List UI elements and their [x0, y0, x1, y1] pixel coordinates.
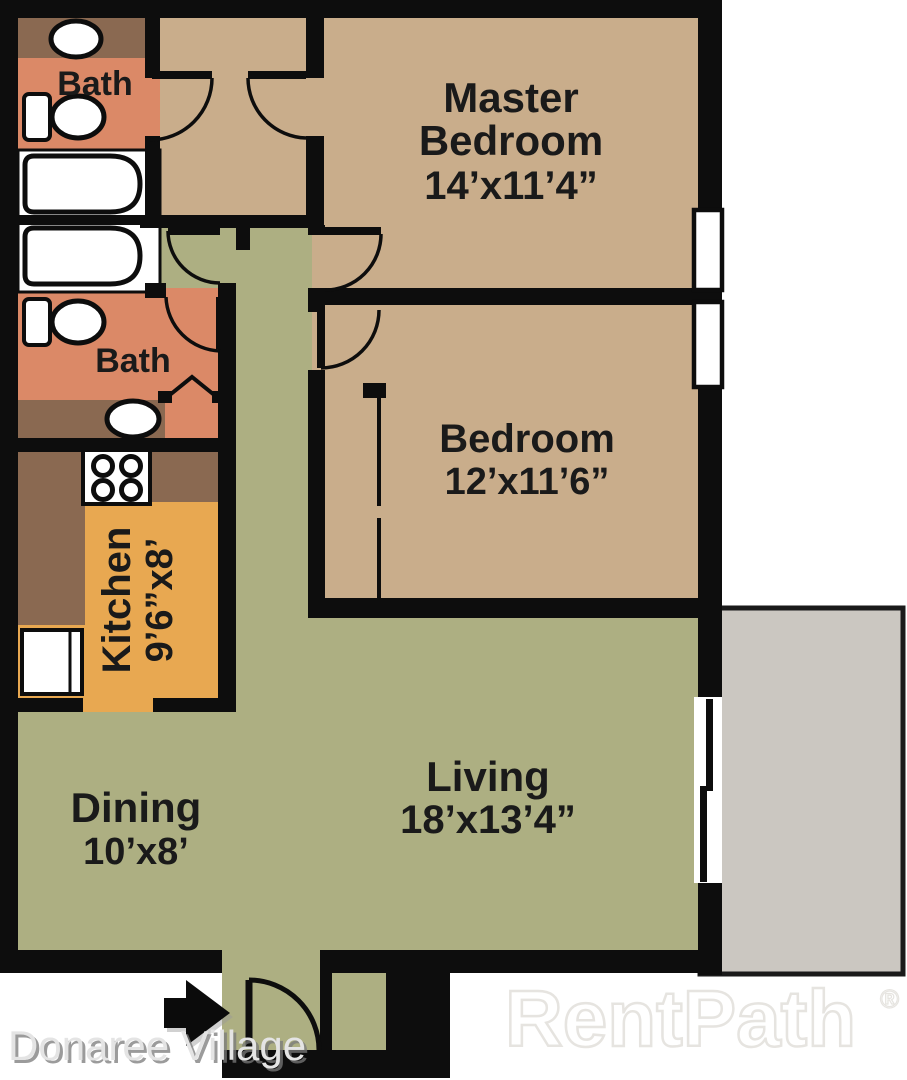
bath-top-label: Bath	[57, 65, 133, 103]
kitchen-label-group: Kitchen 9’6”x8’	[95, 527, 181, 674]
wall-hall-right	[308, 291, 325, 312]
wall-bottom	[0, 950, 222, 973]
window-icon	[694, 302, 722, 387]
wall-kitchen-bottom	[18, 698, 83, 712]
wall-dressing-bottom	[140, 215, 312, 228]
master-bedroom-label: Bedroom	[419, 117, 603, 164]
burner-icon	[94, 481, 113, 500]
burner-icon	[122, 457, 141, 476]
sink-icon	[107, 401, 159, 437]
wall-right	[698, 387, 722, 700]
dressing-area-floor	[145, 18, 324, 228]
wall-bottom	[320, 950, 700, 973]
sink-icon	[51, 21, 101, 57]
kitchen-label: Kitchen	[95, 527, 139, 674]
sliding-door-panel	[706, 699, 713, 791]
kitchen-counter-left	[18, 440, 85, 625]
bathtub-icon	[25, 156, 140, 212]
burner-icon	[94, 457, 113, 476]
wall-bath-top-right	[145, 18, 160, 78]
wall-entry-closet	[320, 950, 332, 1056]
wall-living-top	[316, 598, 700, 618]
sliding-patio-door	[694, 697, 722, 883]
wall-hall-right	[308, 370, 325, 618]
wall-kitchen-top	[18, 438, 236, 452]
closet-partition-line	[377, 398, 381, 506]
wall-dressing-master	[306, 136, 324, 228]
wall-left	[0, 0, 18, 973]
bathtub-icon	[25, 228, 140, 284]
kitchen-dimensions: 9’6”x8’	[139, 538, 181, 663]
master-bedroom-dimensions: 14’x11’4”	[424, 164, 598, 208]
floor-plan: Master Bedroom 14’x11’4” Bedroom 12’x11’…	[0, 0, 907, 1080]
bath-middle-label: Bath	[95, 342, 171, 380]
refrigerator-icon	[22, 630, 82, 694]
property-name: Donaree Village	[8, 1022, 306, 1069]
dining-dimensions: 10’x8’	[83, 831, 189, 873]
living-label: Living	[426, 753, 550, 800]
registered-trademark-icon: ®	[880, 984, 899, 1014]
wall-closet-stub	[363, 383, 386, 398]
window-icon	[694, 210, 722, 290]
rentpath-watermark: RentPath	[505, 974, 856, 1063]
closet-partition-line	[377, 518, 381, 598]
wall-tub-divider	[18, 215, 160, 225]
master-bedroom-label: Master	[443, 74, 578, 121]
floor-plan-page: Master Bedroom 14’x11’4” Bedroom 12’x11’…	[0, 0, 907, 1080]
wall-top	[0, 0, 722, 18]
bedroom-dimensions: 12’x11’6”	[445, 461, 610, 503]
wall-dressing-master	[306, 18, 324, 78]
wall-niche-right	[145, 136, 160, 228]
wall-stub	[158, 391, 172, 403]
wall-kitchen-bottom	[153, 698, 236, 712]
living-dimensions: 18’x13’4”	[400, 798, 576, 842]
sliding-door-panel	[700, 786, 707, 882]
wall-right	[698, 18, 722, 212]
toilet-icon	[52, 301, 104, 343]
wall-stub	[236, 228, 250, 250]
wall-hall-right	[308, 225, 325, 235]
toilet-tank-icon	[24, 299, 50, 345]
dining-label: Dining	[71, 784, 202, 831]
patio-area	[700, 608, 903, 974]
bedroom-label: Bedroom	[439, 417, 615, 461]
wall-master-bedroom-divider	[308, 288, 722, 305]
wall-hall-bath	[145, 283, 166, 298]
wall-right	[698, 878, 722, 975]
burner-icon	[122, 481, 141, 500]
toilet-tank-icon	[24, 94, 50, 140]
wall-stub	[212, 391, 226, 403]
